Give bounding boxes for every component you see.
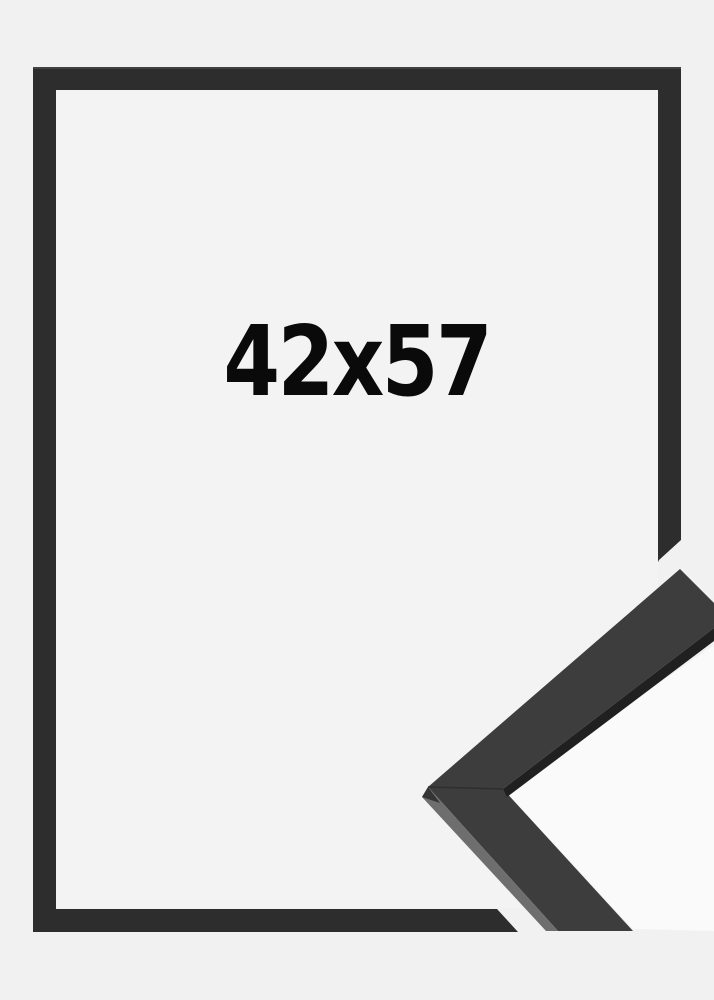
size-label-text: 42x57 — [224, 313, 491, 410]
corner-profile-sample — [0, 0, 714, 1000]
size-label: 42x57 — [0, 300, 714, 422]
product-photo: 42x57 — [0, 0, 714, 1000]
